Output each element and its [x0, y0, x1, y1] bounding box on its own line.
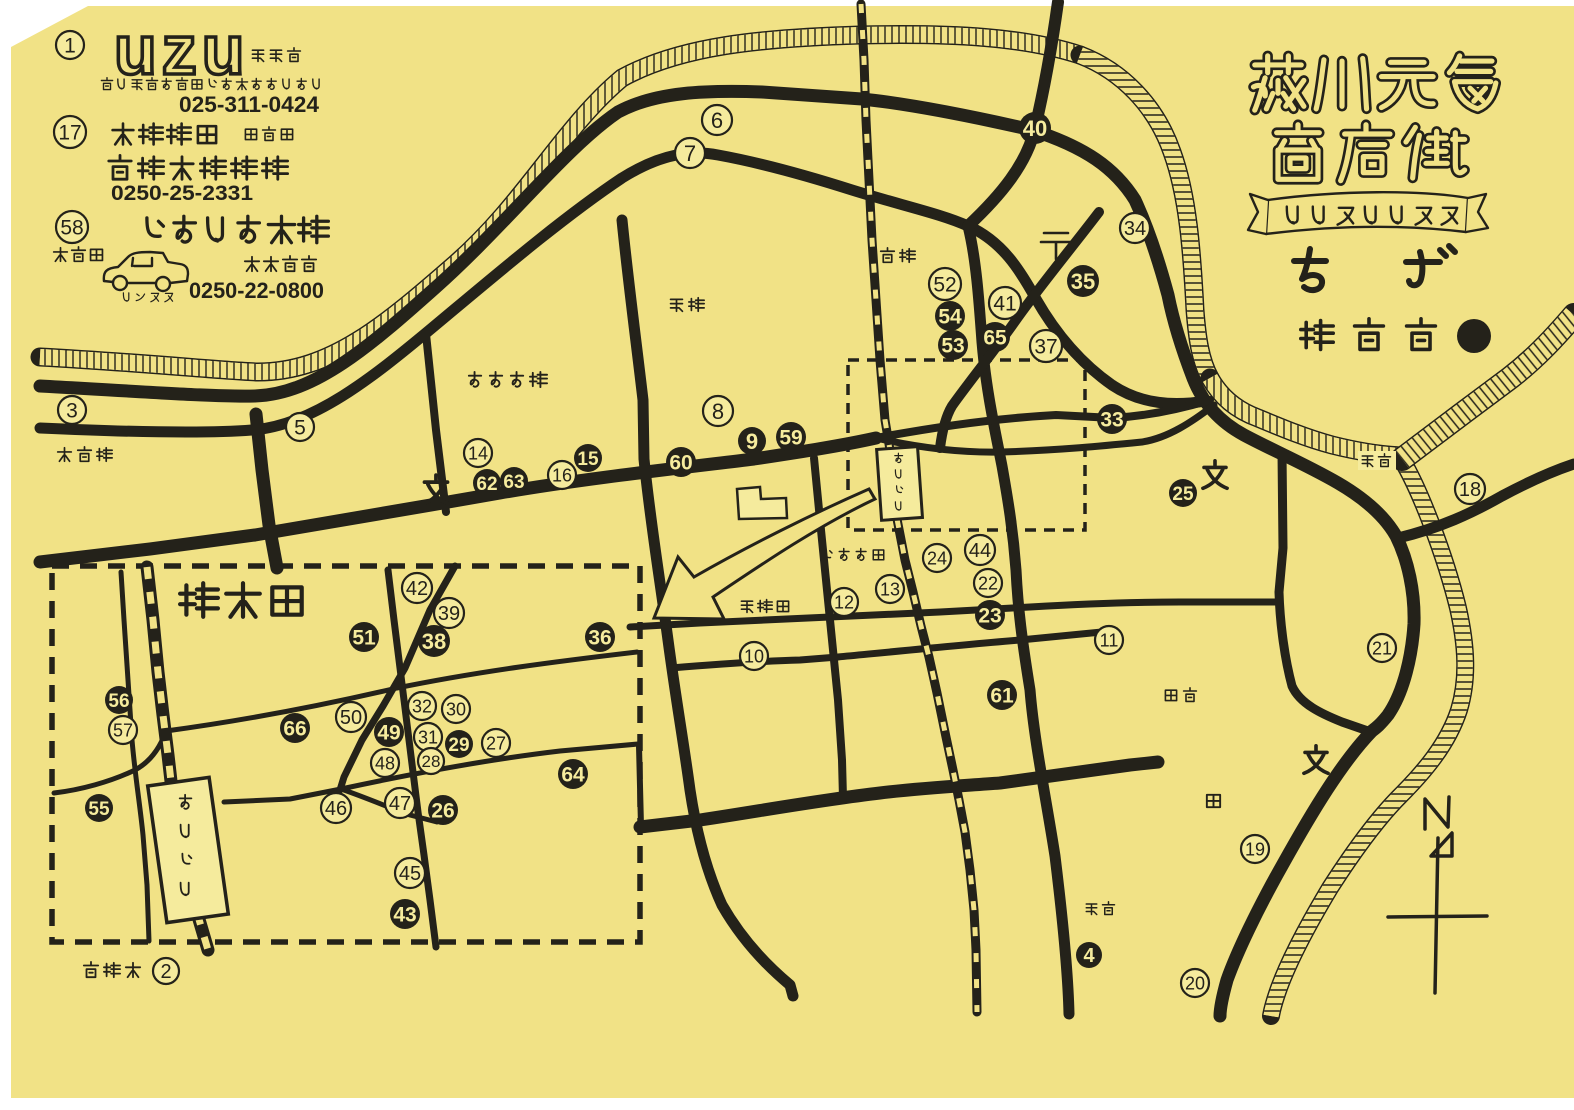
svg-text:40: 40	[1023, 116, 1047, 141]
svg-text:47: 47	[389, 793, 411, 815]
svg-text:22: 22	[978, 573, 998, 593]
svg-text:31: 31	[418, 727, 438, 747]
svg-text:12: 12	[834, 592, 854, 612]
svg-text:24: 24	[927, 548, 947, 568]
svg-text:25: 25	[1172, 484, 1194, 505]
svg-text:6: 6	[711, 108, 723, 133]
svg-text:45: 45	[399, 863, 421, 885]
svg-text:61: 61	[990, 685, 1014, 708]
svg-text:0250-22-0800: 0250-22-0800	[189, 278, 324, 303]
svg-text:39: 39	[438, 603, 460, 625]
svg-text:20: 20	[1185, 973, 1205, 993]
svg-text:34: 34	[1124, 218, 1146, 240]
svg-text:44: 44	[969, 540, 991, 562]
svg-text:60: 60	[669, 452, 692, 475]
svg-text:41: 41	[993, 293, 1016, 316]
svg-text:18: 18	[1459, 479, 1481, 501]
svg-text:28: 28	[422, 752, 441, 771]
svg-text:8: 8	[712, 399, 724, 424]
svg-text:59: 59	[779, 427, 802, 450]
svg-text:63: 63	[503, 472, 524, 493]
svg-text:56: 56	[108, 691, 129, 712]
svg-text:62: 62	[476, 474, 497, 495]
svg-text:64: 64	[561, 764, 585, 787]
svg-text:33: 33	[1100, 409, 1123, 432]
svg-text:15: 15	[577, 449, 599, 470]
svg-text:2: 2	[160, 961, 171, 983]
svg-text:16: 16	[552, 465, 572, 485]
svg-text:26: 26	[431, 800, 454, 823]
svg-text:46: 46	[325, 798, 347, 820]
svg-text:36: 36	[588, 627, 611, 650]
svg-text:37: 37	[1034, 336, 1057, 359]
svg-text:13: 13	[880, 579, 900, 599]
svg-text:35: 35	[1071, 269, 1095, 294]
svg-text:49: 49	[377, 722, 400, 745]
svg-text:38: 38	[422, 629, 446, 654]
svg-text:51: 51	[352, 627, 376, 650]
svg-text:66: 66	[283, 718, 306, 741]
svg-text:19: 19	[1245, 839, 1265, 859]
svg-text:7: 7	[684, 141, 696, 166]
svg-text:23: 23	[978, 605, 1001, 628]
svg-text:0250-25-2331: 0250-25-2331	[111, 182, 253, 205]
svg-text:9: 9	[746, 429, 758, 454]
svg-text:65: 65	[983, 327, 1007, 350]
svg-text:29: 29	[448, 735, 469, 756]
svg-text:14: 14	[468, 443, 488, 463]
svg-text:4: 4	[1083, 945, 1095, 967]
svg-text:11: 11	[1100, 630, 1119, 650]
svg-text:3: 3	[66, 400, 78, 423]
svg-text:17: 17	[58, 122, 81, 145]
svg-text:43: 43	[393, 904, 416, 927]
svg-text:57: 57	[113, 720, 133, 740]
svg-text:48: 48	[375, 753, 395, 773]
svg-text:55: 55	[88, 799, 110, 820]
svg-text:1: 1	[64, 35, 76, 58]
svg-text:32: 32	[412, 696, 432, 716]
svg-text:30: 30	[446, 699, 466, 719]
svg-text:58: 58	[60, 217, 83, 240]
svg-text:52: 52	[933, 274, 956, 297]
svg-text:21: 21	[1372, 638, 1392, 658]
svg-text:42: 42	[406, 578, 428, 600]
svg-text:54: 54	[938, 306, 962, 329]
svg-text:27: 27	[486, 733, 506, 753]
svg-text:53: 53	[941, 335, 964, 358]
svg-text:5: 5	[294, 417, 306, 440]
svg-text:025-311-0424: 025-311-0424	[179, 92, 320, 117]
svg-text:10: 10	[744, 646, 764, 666]
svg-text:50: 50	[340, 707, 362, 729]
